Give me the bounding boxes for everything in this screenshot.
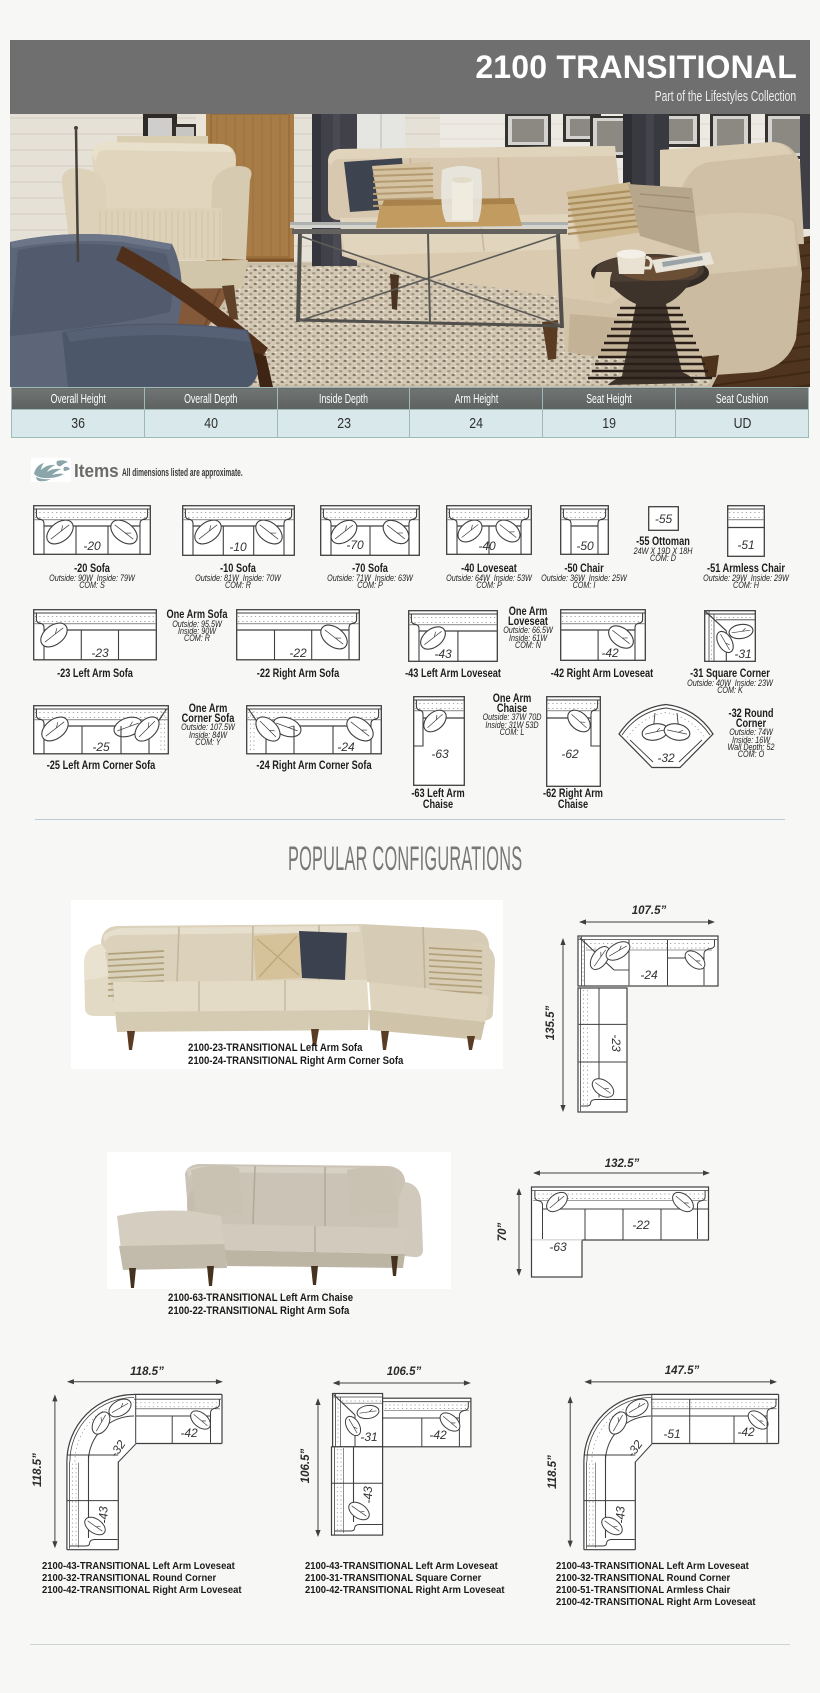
- svg-text:147.5”: 147.5”: [665, 1365, 700, 1377]
- svg-text:118.5”: 118.5”: [32, 1453, 44, 1487]
- svg-text:-42: -42: [180, 1426, 198, 1440]
- svg-text:-20: -20: [83, 539, 101, 553]
- svg-text:-10: -10: [229, 540, 247, 554]
- svg-text:-40: -40: [478, 539, 496, 553]
- svg-text:-31: -31: [734, 647, 751, 661]
- svg-text:-32: -32: [657, 751, 675, 765]
- svg-text:-43: -43: [434, 647, 452, 661]
- svg-text:-22: -22: [289, 646, 307, 660]
- svg-text:-43: -43: [614, 1506, 628, 1524]
- svg-text:106.5”: 106.5”: [387, 1366, 422, 1378]
- svg-text:-24: -24: [337, 740, 355, 754]
- svg-text:70”: 70”: [497, 1222, 509, 1241]
- svg-text:135.5”: 135.5”: [545, 1005, 557, 1040]
- svg-text:-43: -43: [97, 1506, 111, 1524]
- svg-text:-42: -42: [601, 646, 619, 660]
- svg-text:-43: -43: [361, 1486, 375, 1504]
- svg-text:-42: -42: [737, 1425, 755, 1439]
- svg-text:-62: -62: [561, 747, 579, 761]
- svg-text:-70: -70: [346, 538, 364, 552]
- svg-text:-25: -25: [92, 740, 110, 754]
- svg-text:106.5”: 106.5”: [300, 1448, 312, 1483]
- svg-text:-31: -31: [360, 1430, 377, 1444]
- svg-text:-63: -63: [549, 1240, 567, 1254]
- svg-text:107.5”: 107.5”: [632, 905, 667, 917]
- svg-text:-63: -63: [431, 747, 449, 761]
- svg-text:-55: -55: [655, 512, 673, 526]
- svg-text:132.5”: 132.5”: [605, 1158, 640, 1170]
- svg-text:-51: -51: [737, 538, 754, 552]
- svg-text:-24: -24: [640, 968, 658, 982]
- svg-text:-23: -23: [609, 1034, 623, 1052]
- svg-text:-51: -51: [663, 1427, 680, 1441]
- svg-text:-23: -23: [91, 646, 109, 660]
- svg-text:-22: -22: [632, 1218, 650, 1232]
- svg-text:118.5”: 118.5”: [130, 1366, 164, 1378]
- svg-text:118.5”: 118.5”: [547, 1455, 559, 1489]
- svg-text:-42: -42: [429, 1428, 447, 1442]
